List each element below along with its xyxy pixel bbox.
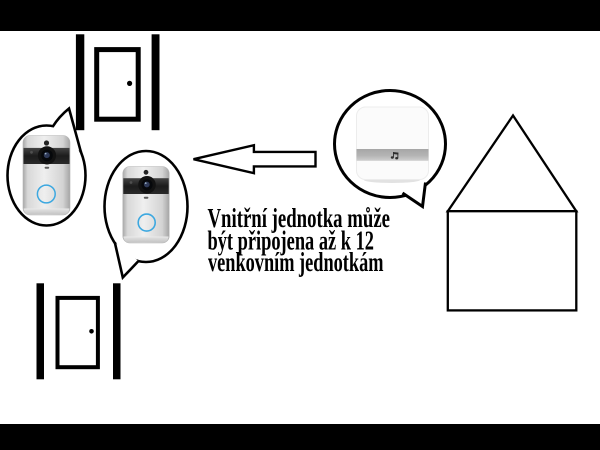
svg-text:venkovním jednotkám: venkovním jednotkám [208, 247, 384, 277]
